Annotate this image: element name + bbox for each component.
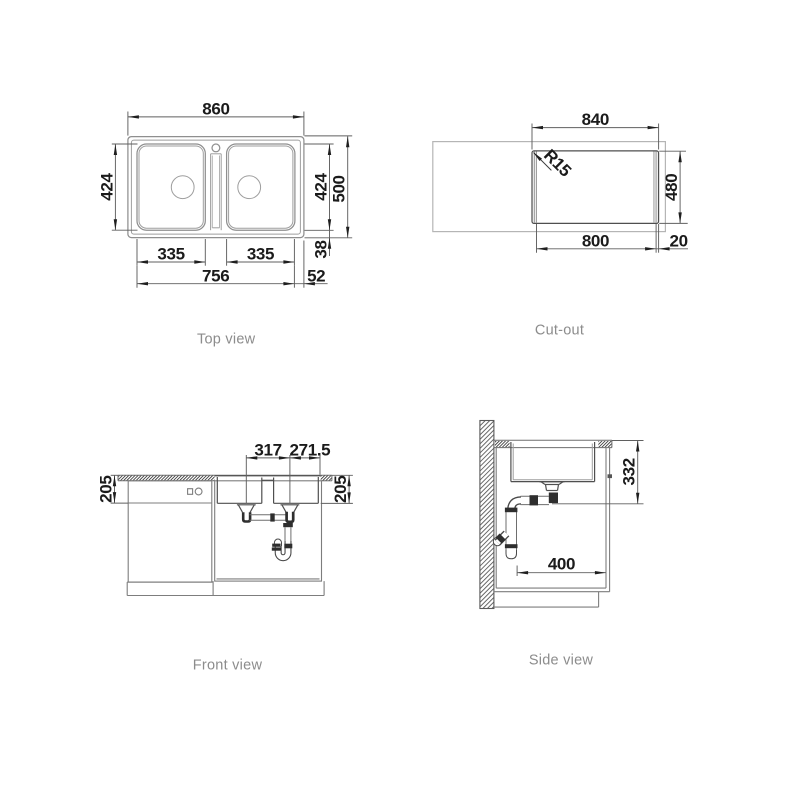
svg-text:20: 20 xyxy=(669,231,687,250)
svg-text:424: 424 xyxy=(97,173,116,201)
svg-text:205: 205 xyxy=(331,476,350,503)
svg-text:500: 500 xyxy=(330,175,349,202)
svg-text:Cut-out: Cut-out xyxy=(535,322,584,338)
svg-text:332: 332 xyxy=(620,458,639,485)
svg-text:800: 800 xyxy=(582,231,609,250)
svg-text:424: 424 xyxy=(312,173,331,201)
svg-text:335: 335 xyxy=(157,245,184,264)
svg-text:335: 335 xyxy=(247,245,274,264)
svg-text:860: 860 xyxy=(202,99,229,118)
svg-text:205: 205 xyxy=(97,476,116,503)
svg-text:317: 317 xyxy=(254,440,281,459)
svg-text:480: 480 xyxy=(662,174,681,201)
svg-text:Front view: Front view xyxy=(193,657,263,673)
svg-text:840: 840 xyxy=(582,110,609,129)
svg-text:400: 400 xyxy=(548,555,575,574)
svg-text:756: 756 xyxy=(202,266,229,285)
svg-text:Top view: Top view xyxy=(197,332,256,348)
svg-text:52: 52 xyxy=(307,266,325,285)
svg-text:271.5: 271.5 xyxy=(290,440,331,459)
svg-text:Side view: Side view xyxy=(529,652,594,668)
svg-text:38: 38 xyxy=(312,240,331,258)
